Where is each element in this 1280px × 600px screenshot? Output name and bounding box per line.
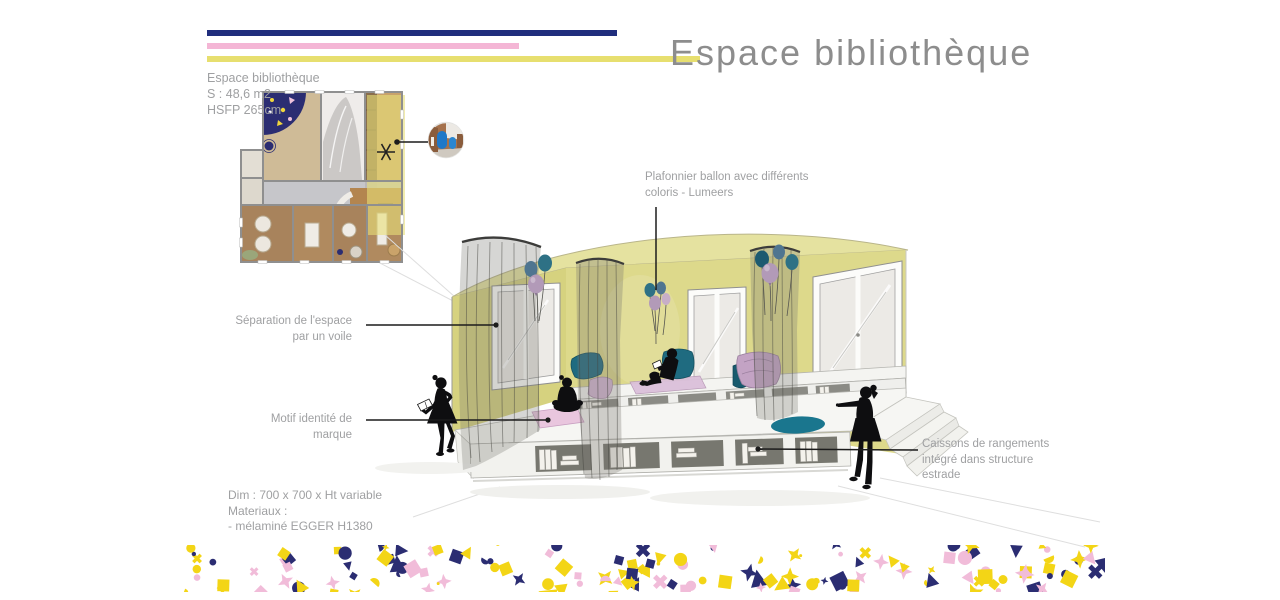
confetti-border: [180, 545, 1105, 592]
annotation-separation: Séparation de l'espace par un voile: [212, 314, 352, 345]
accent-bars: [207, 30, 700, 62]
space-ceiling-height: HSFP 265cm: [207, 102, 320, 118]
confetti-pattern: [180, 545, 1105, 592]
scene-drawing: [0, 0, 1280, 600]
space-name: Espace bibliothèque: [207, 70, 320, 86]
specs-dimensions: Dim : 700 x 700 x Ht variable Materiaux …: [228, 488, 382, 535]
annotation-caissons: Caissons de rangements intégré dans stru…: [922, 437, 1092, 484]
room-rendering: [375, 234, 1100, 547]
presentation-page: Espace bibliothèque Espace bibliothèque …: [0, 0, 1280, 600]
annotation-motif: Motif identité de marque: [212, 412, 352, 443]
accent-bar-yellow: [207, 56, 700, 62]
accent-bar-pink: [207, 43, 519, 49]
space-info: Espace bibliothèque S : 48,6 m2 HSFP 265…: [207, 70, 320, 118]
accent-bar-navy: [207, 30, 617, 36]
space-surface: S : 48,6 m2: [207, 86, 320, 102]
plan-library-highlight: [367, 95, 405, 235]
curtain-center: [576, 258, 624, 480]
annotation-plafonnier: Plafonnier ballon avec différents colori…: [645, 170, 860, 201]
detail-inset-photo: [428, 122, 465, 160]
page-title: Espace bibliothèque: [670, 32, 1032, 74]
